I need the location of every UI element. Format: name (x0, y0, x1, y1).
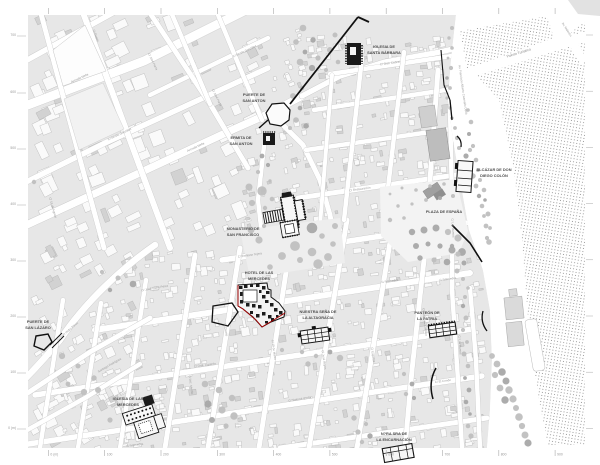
svg-text:PUERTE DE: PUERTE DE (27, 319, 50, 324)
svg-text:LA ALTAGRACIA: LA ALTAGRACIA (302, 315, 333, 320)
svg-text:MONASTERIO DE: MONASTERIO DE (227, 226, 260, 231)
svg-text:MERCEDES: MERCEDES (117, 402, 139, 407)
svg-text:PUERTE DE: PUERTE DE (243, 92, 266, 97)
svg-text:SAN ANTON: SAN ANTON (243, 98, 266, 103)
svg-text:SAN LÁZARO: SAN LÁZARO (25, 325, 51, 330)
svg-text:IGLESIA DE: IGLESIA DE (373, 44, 395, 49)
svg-text:ALCÁZAR DE DON: ALCÁZAR DE DON (476, 167, 511, 172)
svg-text:N?RA SRA DE: N?RA SRA DE (381, 431, 408, 436)
svg-text:700: 700 (10, 33, 16, 37)
svg-text:PANTEÓN DE: PANTEÓN DE (414, 310, 440, 315)
svg-text:SAN FRANCISCO: SAN FRANCISCO (227, 232, 259, 237)
svg-text:600: 600 (388, 453, 394, 457)
svg-text:100: 100 (107, 453, 113, 457)
svg-text:MERCEDES: MERCEDES (248, 276, 270, 281)
svg-text:SANTA BÁRBARA: SANTA BÁRBARA (367, 50, 401, 55)
svg-text:200: 200 (163, 453, 169, 457)
svg-text:500: 500 (332, 453, 338, 457)
svg-text:900: 900 (557, 453, 563, 457)
svg-text:400: 400 (276, 453, 282, 457)
svg-text:IGLESIA DE LAS: IGLESIA DE LAS (113, 396, 144, 401)
svg-text:200: 200 (10, 314, 16, 318)
svg-text:LA ENCARNACIÓN: LA ENCARNACIÓN (376, 437, 411, 442)
svg-text:300: 300 (10, 258, 16, 262)
svg-text:100: 100 (10, 370, 16, 374)
svg-text:HOTEL DE LAS: HOTEL DE LAS (245, 270, 274, 275)
svg-text:600: 600 (10, 90, 16, 94)
svg-text:SAN ANTON: SAN ANTON (230, 141, 253, 146)
svg-text:500: 500 (10, 146, 16, 150)
svg-text:DIEGO COLÓN: DIEGO COLÓN (480, 173, 508, 178)
svg-text:700: 700 (445, 453, 451, 457)
svg-text:ERMITA DE: ERMITA DE (231, 135, 252, 140)
svg-text:300: 300 (219, 453, 225, 457)
svg-text:NUESTRA SEÑA DE: NUESTRA SEÑA DE (300, 309, 337, 314)
svg-text:400: 400 (10, 202, 16, 206)
svg-text:PLAZA DE ESPAÑA: PLAZA DE ESPAÑA (426, 209, 463, 214)
svg-text:800: 800 (501, 453, 507, 457)
svg-text:0 (m): 0 (m) (50, 453, 58, 457)
svg-text:0 (m): 0 (m) (8, 426, 16, 430)
